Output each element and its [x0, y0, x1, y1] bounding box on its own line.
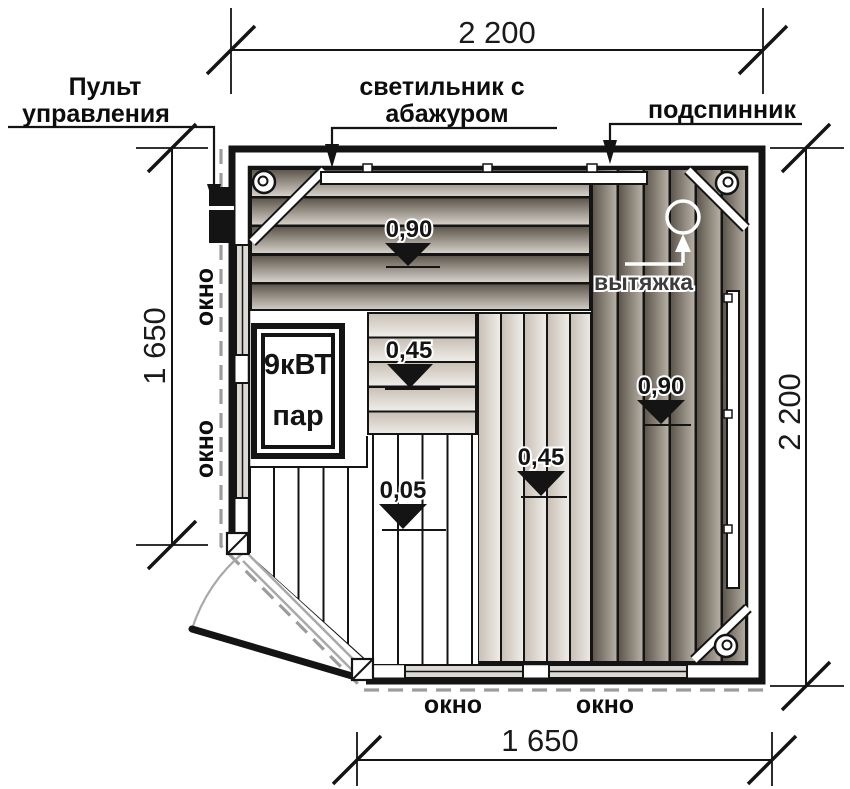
control-panel-label-line2: управления [22, 100, 170, 128]
window-left-bottom-glazing [236, 383, 249, 498]
floor-edge-line [250, 436, 367, 553]
lamp-mount-mark [483, 164, 492, 172]
dimension-bottom-value: 1 650 [501, 723, 579, 758]
lamp-leader [325, 128, 557, 168]
corner-speaker-icon [715, 635, 737, 657]
leader-arrow-icon [603, 140, 617, 164]
dimension-right: 2 200 [770, 124, 844, 710]
window-bottom-left-glazing [405, 665, 523, 678]
lamp-label-line1: светильник с [359, 73, 524, 101]
lamp-label-line2: абажуром [385, 100, 508, 128]
control-panel-leader [8, 127, 221, 206]
window-bottom-right-glazing [549, 665, 687, 678]
window-label-left-top: окно [191, 268, 219, 326]
backrest-mount-mark [724, 410, 732, 418]
corner-brace-top-left [252, 170, 324, 242]
backrest-label: подспинник [648, 96, 797, 124]
dimension-left: 1 650 [136, 124, 208, 569]
dimension-top-value: 2 200 [458, 15, 536, 50]
level-mark-mid-bench: 0,45 [385, 337, 440, 389]
level-value: 0,45 [518, 444, 565, 471]
door-frame-line [243, 561, 353, 671]
level-value: 0,05 [380, 477, 427, 504]
dimension-right-value: 2 200 [772, 373, 807, 451]
corner-speaker-icon [253, 171, 275, 193]
window-label-bottom-right: окно [576, 691, 634, 719]
exhaust-leader-line [625, 251, 683, 264]
door-jamb-cap [227, 533, 248, 554]
level-mark-floor: 0,05 [379, 477, 446, 530]
exhaust-vent-icon [667, 201, 699, 233]
control-panel-label-line1: Пульт [69, 73, 142, 101]
exhaust-arrow-icon [675, 234, 691, 252]
corner-brace-bottom-right [694, 608, 748, 660]
door-swing-arc [192, 552, 244, 629]
dimension-left-value: 1 650 [137, 307, 172, 385]
door [192, 533, 373, 680]
backrest-mount-mark [724, 525, 732, 533]
corner-brace-top-right [688, 170, 746, 228]
window-left-top-glazing [236, 245, 249, 355]
door-jamb-cap [352, 659, 373, 680]
lamp-mount-mark [363, 164, 372, 172]
level-mark-right-bench: 0,90 [637, 373, 691, 425]
window-label-bottom-left: окно [424, 691, 482, 719]
exhaust-label: вытяжка [594, 269, 693, 295]
level-value: 0,90 [638, 373, 685, 400]
corner-speaker-icon [716, 172, 738, 194]
door-leaf [192, 629, 352, 676]
backrest-slat [724, 291, 739, 588]
lamp-mount-mark [587, 164, 597, 172]
backrest-mount-mark [724, 294, 732, 302]
level-mark-front-bench: 0,45 [517, 444, 567, 497]
level-mark-top-bench: 0,90 [385, 216, 440, 267]
exhaust-vent [625, 201, 699, 264]
leader-arrow-icon [325, 144, 339, 168]
sauna-floor-plan: 9кВТ пар [0, 0, 850, 789]
window-label-left-bottom: окно [191, 420, 219, 478]
level-value: 0,90 [386, 216, 433, 243]
backrest-leader [603, 124, 802, 164]
plan-detail-layer: 0,90 0,45 0,05 0,45 0,90 [0, 0, 850, 789]
level-value: 0,45 [386, 337, 433, 364]
dimension-bottom: 1 650 [333, 723, 796, 786]
lamp-bar [321, 164, 647, 184]
